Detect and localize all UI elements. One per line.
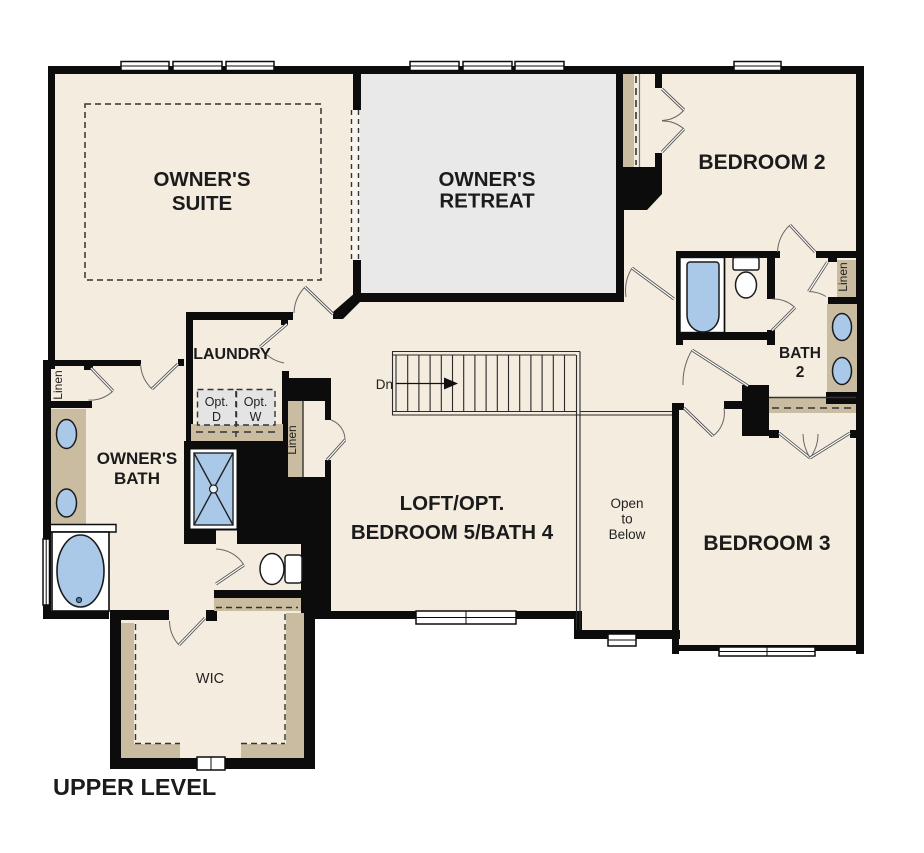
svg-text:Open: Open <box>610 496 643 511</box>
svg-text:BEDROOM 3: BEDROOM 3 <box>703 532 830 555</box>
svg-text:OWNER'S: OWNER'S <box>153 168 250 191</box>
svg-text:Dn: Dn <box>376 377 393 392</box>
svg-text:W: W <box>250 410 262 424</box>
svg-text:RETREAT: RETREAT <box>439 190 535 213</box>
svg-text:Linen: Linen <box>51 370 65 399</box>
svg-text:Linen: Linen <box>285 425 299 454</box>
svg-text:OWNER'S: OWNER'S <box>438 168 535 191</box>
svg-text:UPPER LEVEL: UPPER LEVEL <box>53 774 216 800</box>
svg-text:Opt.: Opt. <box>205 395 229 409</box>
svg-text:LAUNDRY: LAUNDRY <box>193 346 271 363</box>
svg-text:BEDROOM 5/BATH 4: BEDROOM 5/BATH 4 <box>351 521 554 544</box>
svg-text:OWNER'S: OWNER'S <box>97 449 178 468</box>
svg-text:Opt.: Opt. <box>244 395 268 409</box>
svg-text:LOFT/OPT.: LOFT/OPT. <box>400 492 505 515</box>
svg-text:to: to <box>621 512 632 527</box>
svg-text:BEDROOM 2: BEDROOM 2 <box>698 151 825 174</box>
svg-text:Linen: Linen <box>836 262 850 291</box>
svg-text:D: D <box>212 410 221 424</box>
svg-text:SUITE: SUITE <box>172 192 232 215</box>
svg-text:WIC: WIC <box>196 671 224 687</box>
svg-text:2: 2 <box>796 364 805 381</box>
svg-text:BATH: BATH <box>114 469 160 488</box>
svg-text:BATH: BATH <box>779 345 821 362</box>
svg-text:Below: Below <box>609 527 646 542</box>
